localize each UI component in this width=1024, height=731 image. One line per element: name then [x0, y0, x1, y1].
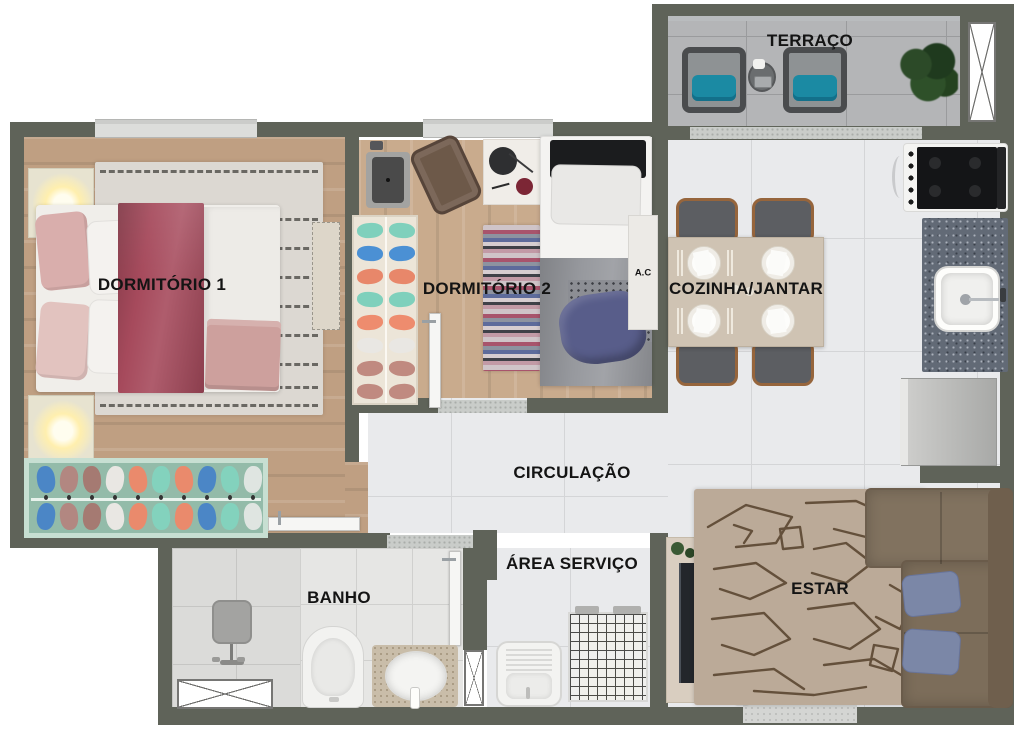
kitchen-sink	[934, 266, 1000, 332]
room-label-circulacao: CIRCULAÇÃO	[513, 463, 630, 483]
hanger-hook	[113, 495, 117, 500]
toilet-lid	[311, 638, 355, 696]
fridge-edge	[900, 379, 908, 465]
clothes-item	[175, 466, 193, 530]
room-label-dormitorio1: DORMITÓRIO 1	[98, 275, 226, 295]
terrace-armchair	[783, 47, 847, 113]
closet	[24, 458, 268, 538]
clothes-bottom	[174, 502, 195, 531]
hanger-hook	[90, 495, 94, 500]
cutlery	[677, 250, 679, 276]
hanger-hook	[44, 495, 48, 500]
clothes-item	[106, 466, 124, 530]
bedroom2-door-threshold	[438, 400, 527, 413]
napkin	[693, 308, 712, 334]
clothes-item	[37, 466, 55, 530]
hanging-clothes	[389, 291, 416, 308]
clothes-top	[196, 465, 218, 494]
table-lamp	[33, 400, 93, 462]
napkin	[767, 308, 786, 334]
faucet-arm	[969, 298, 999, 301]
hanging-clothes	[356, 291, 383, 308]
drying-rack	[568, 612, 648, 702]
charger	[370, 141, 383, 150]
wall-bedroom2-bottom-right	[527, 398, 655, 413]
floor-lamp	[212, 600, 252, 644]
laundry-door-panel	[464, 650, 484, 706]
washboard-ridges	[506, 649, 552, 671]
clothes-top	[59, 465, 80, 494]
plant	[898, 42, 958, 106]
floor-plan: TERRAÇO DORMITÓRIO 1 DORMITÓRIO 2 COZINH…	[0, 0, 1024, 731]
entry-threshold	[743, 705, 857, 723]
laundry-sink	[496, 641, 562, 707]
laptop-dot	[386, 178, 390, 182]
clothes-item	[129, 466, 147, 530]
clothes-bottom	[219, 502, 240, 531]
clothes-item	[60, 466, 78, 530]
stove-edge	[997, 147, 1006, 209]
hanger-hook	[67, 495, 71, 500]
hanger-hook	[228, 495, 232, 500]
clothes-bottom	[82, 502, 102, 530]
wardrobe	[352, 215, 418, 405]
clothes-item	[152, 466, 170, 530]
sofa-armrest	[988, 488, 1013, 708]
wall-living-stub	[920, 466, 1014, 483]
room-label-banho: BANHO	[307, 588, 371, 608]
hanger-hook	[136, 495, 140, 500]
hanging-clothes	[357, 222, 384, 239]
hanging-clothes	[357, 337, 384, 354]
terrace-frame-strip	[668, 16, 960, 21]
wall-bathroom-left	[158, 548, 172, 725]
clothes-top	[35, 465, 57, 494]
hanging-clothes	[388, 360, 415, 377]
hanging-clothes	[357, 383, 384, 400]
bedroom2-window	[423, 119, 553, 138]
hanging-clothes	[356, 268, 383, 286]
terrace-window	[968, 22, 996, 122]
side-desk	[483, 139, 545, 205]
refrigerator	[901, 378, 997, 466]
tv	[679, 563, 694, 683]
pillow	[35, 301, 93, 381]
clothes-top	[151, 465, 171, 493]
stove-handle	[892, 156, 908, 198]
hanger-hook	[159, 495, 163, 500]
bathroom-window	[177, 679, 273, 709]
throw-pillow	[901, 570, 962, 618]
bedroom1-door-handle	[278, 511, 281, 525]
bedroom1-door	[268, 517, 360, 531]
rack-clip	[613, 606, 641, 614]
bedroom2-door	[429, 313, 441, 408]
bathroom-vanity	[372, 645, 458, 707]
sofa-seam	[940, 492, 942, 564]
cutlery	[727, 308, 729, 334]
nightstand	[28, 395, 94, 465]
clothes-bottom	[35, 502, 57, 531]
room-label-estar: ESTAR	[791, 579, 849, 599]
hanger-hook	[205, 495, 209, 500]
side-table-tray	[754, 76, 772, 88]
bedroom2-door-handle	[422, 320, 436, 323]
clothes-top	[174, 465, 195, 494]
hanging-clothes	[389, 268, 416, 285]
folded-blanket	[205, 319, 281, 392]
wall-left-outer	[10, 122, 24, 548]
throw-pillow	[902, 628, 962, 676]
clothes-top	[104, 465, 125, 494]
cooktop	[903, 143, 1008, 212]
ac-unit-label: A.C	[635, 268, 651, 279]
clothes-item	[244, 466, 262, 530]
clothes-item	[83, 466, 101, 530]
burner	[969, 157, 981, 169]
red-decor	[516, 178, 533, 195]
hanging-clothes	[388, 245, 415, 262]
wardrobe-divider	[385, 217, 387, 403]
side-table-decor	[753, 59, 765, 69]
rug-stripe	[100, 170, 318, 173]
drain	[526, 687, 530, 699]
armchair-cushion	[692, 75, 736, 101]
clothes-item	[198, 466, 216, 530]
room-label-area-servico: ÁREA SERVIÇO	[506, 554, 638, 574]
glasses	[492, 183, 511, 192]
rug-stripe	[100, 404, 318, 407]
desk-lamp	[489, 147, 517, 175]
burner	[929, 185, 941, 197]
stove-knobs	[907, 148, 915, 208]
room-label-dormitorio2: DORMITÓRIO 2	[423, 279, 551, 299]
clothes-bottom	[59, 502, 80, 531]
hanging-clothes	[357, 245, 384, 262]
clothes-top	[243, 465, 263, 493]
bed-blanket	[118, 203, 204, 393]
hanging-clothes	[388, 383, 415, 401]
faucet	[410, 687, 420, 709]
cutlery	[677, 308, 679, 334]
hanger-hook	[182, 495, 186, 500]
clothes-item	[221, 466, 239, 530]
burner	[969, 185, 981, 197]
hanging-clothes	[356, 314, 383, 331]
lamp-pole	[230, 644, 233, 660]
flush-button	[329, 697, 339, 702]
clothes-top	[82, 465, 102, 493]
wall-bathroom-laundry	[463, 548, 487, 650]
faucet-handle	[237, 657, 245, 662]
bathroom-door	[449, 551, 461, 646]
clothes-top	[219, 465, 240, 494]
cooktop-surface	[917, 147, 997, 209]
rack-clip	[575, 606, 599, 614]
hanging-clothes	[388, 222, 415, 239]
burner	[929, 157, 941, 169]
pillow	[34, 210, 94, 291]
clothes-bottom	[151, 502, 171, 530]
plant	[671, 542, 684, 555]
clothes-bottom	[243, 502, 263, 530]
clothes-top	[127, 465, 149, 494]
room-label-cozinha-jantar: COZINHA/JANTAR	[669, 279, 823, 299]
bedroom1-window	[95, 119, 257, 138]
wall-terrace-left	[652, 4, 668, 140]
terrace-door-threshold	[690, 127, 922, 139]
clothes-bottom	[104, 502, 125, 531]
wall-bottom-outer	[158, 707, 1014, 725]
hanging-clothes	[389, 337, 416, 354]
cutlery	[727, 250, 729, 276]
clothes-bottom	[196, 502, 218, 531]
toilet	[302, 626, 364, 708]
desk-mat	[366, 152, 410, 208]
dresser	[312, 222, 340, 330]
terrace-armchair	[682, 47, 746, 113]
hanging-clothes	[388, 314, 415, 332]
bathroom-door-handle	[442, 558, 456, 561]
armchair-cushion	[793, 75, 837, 101]
bathroom-door-threshold	[387, 535, 473, 548]
hanger-hook	[251, 495, 255, 500]
hanging-clothes	[356, 360, 383, 377]
room-label-terraco: TERRAÇO	[767, 31, 853, 51]
clothes-bottom	[127, 502, 149, 531]
faucet-handle	[1000, 288, 1006, 302]
faucet-handle	[212, 657, 220, 662]
